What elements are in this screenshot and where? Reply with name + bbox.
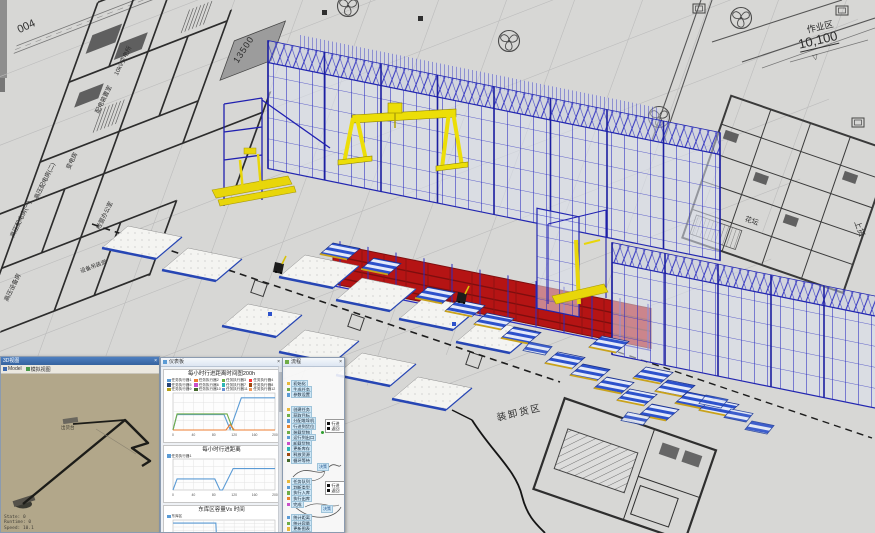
chart-plot: 04080120160200 [165,519,278,533]
dashboard-titlebar[interactable]: 仪表板 × [161,358,282,367]
chart-card-c1[interactable]: 每小时行进距离时间图200h任务执行器1任务执行器2任务执行器3任务执行器4任务… [163,369,280,443]
viewport3d-canvas[interactable]: 出货台 State: 0 Runtime: 0 Speed: 10.1 [1,374,159,533]
model-icon [3,367,7,371]
flow-group: 初始化生成任务参数设置 [287,381,323,398]
blue-pallet [570,364,610,381]
forklift [273,256,286,274]
dashboard-icon [163,360,167,364]
viewport3d-window[interactable]: 3D视图 × Model 模拟视图 出货台 State: 0 Runtime: … [0,356,160,533]
flow-node[interactable]: 循环等待 [287,457,323,463]
process-flow-body[interactable]: 决策 决策 行进 返回 行进 返回 初始化生成任务参数设置创建任务获取目标分配堆… [283,367,344,533]
white-pallet [336,353,416,386]
blue-pallet [545,352,585,369]
close-icon[interactable]: × [277,358,280,366]
white-pallet [102,226,182,259]
app-stage: 004 13500 作业区 10,100 ▽ 装卸货区 花坛 上货 配电装置室 … [0,0,875,533]
svg-text:0: 0 [172,433,174,437]
dashboard-title: 仪表板 [169,358,184,366]
white-pallet [392,377,472,410]
process-flow-titlebar[interactable]: 流程 × [283,358,344,367]
tab-simulation[interactable]: 模拟视图 [31,366,51,373]
close-icon[interactable]: × [154,357,157,365]
plan-roads [652,0,875,143]
agv-dot [452,322,456,326]
chart-title: 每小时行进距离 [165,447,278,454]
path-marker-label: 出货台 [61,426,75,431]
dashboard-cards: 每小时行进距离时间图200h任务执行器1任务执行器2任务执行器3任务执行器4任务… [161,369,282,533]
white-pallet [222,304,302,337]
chart-title: 东库区容量Vs 时间 [165,507,278,514]
fan-icon [338,0,359,17]
svg-text:160: 160 [252,433,258,437]
chart-card-c3[interactable]: 东库区容量Vs 时间东库区04080120160200 [163,505,280,533]
flow-node[interactable]: 参数设置 [287,392,323,398]
chart-title: 每小时行进距离时间图200h [165,371,278,378]
svg-text:80: 80 [212,493,216,497]
viewport3d-titlebar[interactable]: 3D视图 × [1,357,159,365]
flow-side-box[interactable]: 行进 返回 [325,419,345,433]
chart-legend: 任务执行器1任务执行器2任务执行器3任务执行器4任务执行器5任务执行器6任务执行… [165,378,278,392]
close-icon[interactable]: × [339,358,342,366]
chart-plot: 04080120160200 [165,392,278,437]
simulation-icon [26,367,30,371]
flow-group: 创建任务获取目标分配堆垛机行进到货位装载货物运行到出口卸载货物更新库存释放资源循… [287,407,323,463]
svg-text:0: 0 [172,493,174,497]
conveyor-ramp [745,421,774,434]
flow-decision[interactable]: 决策 [317,463,329,471]
process-flow-title: 流程 [291,358,301,366]
svg-text:120: 120 [231,433,237,437]
flow-group: 任务队列判断类型执行入库执行出库完成 [287,479,323,507]
chart-plot: 04080120160200 [165,458,278,497]
trajectory-plot [1,374,160,533]
svg-text:160: 160 [252,493,258,497]
agv-path [472,420,545,533]
svg-text:80: 80 [212,433,216,437]
flow-node[interactable]: 完成 [287,501,323,507]
chart-card-c2[interactable]: 每小时行进距离任务执行器104080120160200 [163,445,280,504]
viewport3d-hud: State: 0 Runtime: 0 Speed: 10.1 [4,515,34,532]
tab-model[interactable]: Model [8,366,22,372]
viewport3d-title: 3D视图 [3,357,19,365]
flow-icon [285,360,289,364]
fan-icon [731,8,752,29]
process-flow-window[interactable]: 流程 × 决策 决策 行进 返回 行进 返回 初始化生成任务参数设置创建任 [282,357,345,533]
flow-group: 统计距离统计容量更新图表延时记录日志结束返回主流程 [287,515,323,533]
agv-dot [268,312,272,316]
fan-icon [499,31,520,52]
status-dot [321,431,324,434]
svg-text:40: 40 [192,493,196,497]
dashboard-window[interactable]: 仪表板 × 每小时行进距离时间图200h任务执行器1任务执行器2任务执行器3任务… [160,357,283,533]
white-pallet [162,248,242,281]
flow-side-box[interactable]: 行进 返回 [325,481,345,495]
svg-text:40: 40 [192,433,196,437]
svg-text:120: 120 [231,493,237,497]
